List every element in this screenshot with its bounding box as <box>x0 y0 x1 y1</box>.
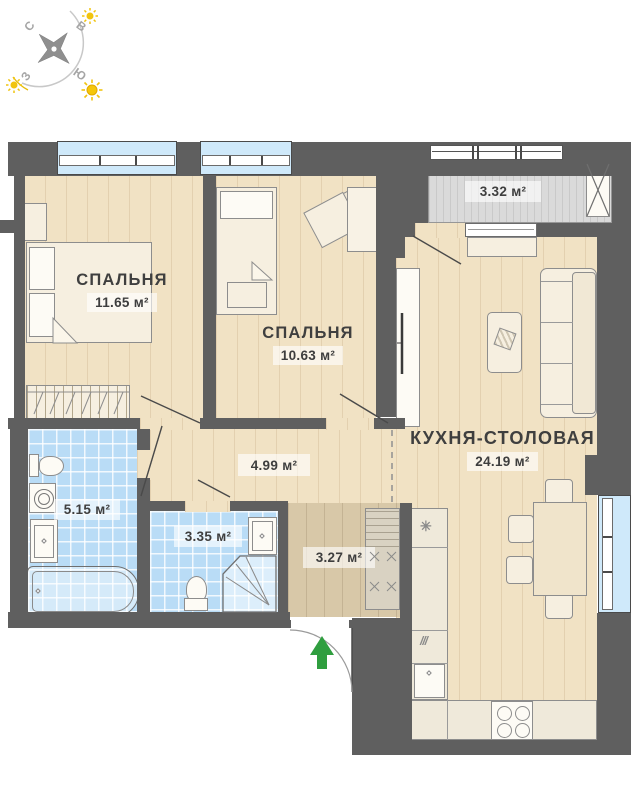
kitchen-sink <box>414 664 445 698</box>
compass-star <box>38 33 69 64</box>
compass-arc-yellow <box>13 77 28 90</box>
sofa-seat-line <box>541 322 573 323</box>
wc-area-badge: 3.35 м² <box>174 526 242 547</box>
wall-bottom-kitchen <box>412 740 597 755</box>
window-mullion <box>135 156 137 165</box>
counter-divider <box>410 630 448 631</box>
sun-icon <box>82 8 98 24</box>
compass-rose: С В З Ю <box>6 8 103 101</box>
hallway-area-badge: 4.99 м² <box>238 454 310 476</box>
room-name: КУХНЯ-СТОЛОВАЯ <box>410 428 595 449</box>
balcony-railing <box>430 145 563 160</box>
wall-balcony-bottom <box>537 223 612 237</box>
bed-drawer <box>227 282 267 308</box>
toilet-tank <box>29 454 39 477</box>
wall-left-bedroom <box>14 176 25 422</box>
railing-post <box>477 146 479 159</box>
pillow <box>220 191 273 219</box>
railing-post <box>515 146 517 159</box>
toilet-bowl <box>39 456 64 476</box>
area-badge: 11.65 м² <box>87 293 157 312</box>
dining-chair <box>508 515 534 543</box>
burner <box>497 706 512 721</box>
sofa-seat-line <box>541 363 573 364</box>
wall-left-stub <box>0 220 16 233</box>
wall-balcony-left2 <box>415 142 428 223</box>
room-name: СПАЛЬНЯ <box>262 324 354 343</box>
fridge-icon: ✳ <box>420 518 432 535</box>
wall-left-bathroom <box>10 418 28 628</box>
wall-bathroom-right <box>137 478 150 628</box>
closet-shelves <box>366 509 399 547</box>
window-frame <box>59 155 175 166</box>
bedroom1-label: СПАЛЬНЯ 11.65 м² <box>60 271 184 312</box>
counter-divider <box>447 700 448 740</box>
compass-west: З <box>18 69 34 83</box>
compass-center <box>51 46 56 51</box>
wall-right-mid <box>597 223 631 495</box>
compass-east: В <box>74 18 90 35</box>
entrance-door-arc <box>290 630 352 692</box>
balcony-door-post <box>408 230 415 237</box>
burner <box>515 723 530 738</box>
pillow <box>29 293 55 337</box>
balcony-window <box>465 223 537 237</box>
entrance-door-post <box>349 620 355 628</box>
room-name: СПАЛЬНЯ <box>76 271 168 290</box>
wall-bathroom-right-top <box>137 429 150 450</box>
wall-bedrooms-bottom-a <box>8 418 140 429</box>
window-mullion <box>229 156 231 165</box>
railing-line <box>432 151 561 152</box>
bathroom-area-badge: 5.15 м² <box>54 499 120 520</box>
sofa-armrest-line <box>541 281 573 282</box>
sun-icon-large <box>82 80 103 101</box>
burner <box>515 706 530 721</box>
dining-chair <box>506 556 533 584</box>
window-mullion <box>99 156 101 165</box>
bedroom2-label: СПАЛЬНЯ 10.63 м² <box>246 324 370 365</box>
wall-wc-entry-divider <box>278 501 288 612</box>
wall-entry-kitchen <box>400 503 412 618</box>
wall-wc-top-b <box>230 501 278 511</box>
compass-south: Ю <box>71 65 89 84</box>
doorway-bathroom <box>137 450 151 480</box>
railing-post <box>472 146 474 159</box>
dining-chair <box>545 593 573 619</box>
floor-plan: ✳ /// <box>0 0 639 785</box>
compass-north: С <box>21 18 38 34</box>
wall-right-bottom <box>597 613 631 755</box>
burner <box>497 723 512 738</box>
wall-balcony-left <box>396 142 415 237</box>
area-badge: 24.19 м² <box>467 452 537 471</box>
window-frame <box>202 155 290 166</box>
entry-area-badge: 3.27 м² <box>303 547 375 568</box>
railing-post <box>520 146 522 159</box>
dining-table <box>533 502 587 596</box>
entrance-door-post <box>285 620 291 628</box>
area-badge: 10.63 м² <box>273 346 343 365</box>
entrance-arrow <box>310 636 334 669</box>
window-mullion <box>261 156 263 165</box>
doorway-bedroom2 <box>326 418 378 430</box>
window-mullion <box>603 536 612 538</box>
closet-hanger-rack <box>26 385 130 419</box>
window-mullion <box>603 571 612 573</box>
bathtub-inner <box>32 571 134 612</box>
pillow <box>29 247 55 290</box>
sofa-armrest-line <box>541 404 573 405</box>
wall-entry-chunk <box>352 618 412 755</box>
kitchen-label: КУХНЯ-СТОЛОВАЯ 24.19 м² <box>405 428 600 471</box>
balcony-window-line <box>468 229 534 230</box>
balcony-door-cabinet <box>467 237 537 257</box>
compass-arc <box>22 11 83 87</box>
doorway-wc <box>185 501 231 512</box>
tv-console <box>396 268 420 427</box>
counter-divider <box>410 547 448 548</box>
toilet-tank <box>184 598 208 611</box>
wall-bedrooms-bottom-c <box>374 418 405 429</box>
doorway-balcony <box>415 223 467 238</box>
window-frame <box>602 498 613 610</box>
wall-bedrooms-bottom-b <box>200 418 326 429</box>
oven-icon: /// <box>420 634 427 648</box>
sun-icon <box>6 77 22 93</box>
wardrobe <box>23 203 47 241</box>
balcony-area-badge: 3.32 м² <box>465 181 541 202</box>
wall-wc-top-a <box>150 501 185 511</box>
wall-bedroom-divider <box>203 176 216 429</box>
washer-drum-inner <box>38 493 50 505</box>
sofa-back <box>572 272 596 414</box>
